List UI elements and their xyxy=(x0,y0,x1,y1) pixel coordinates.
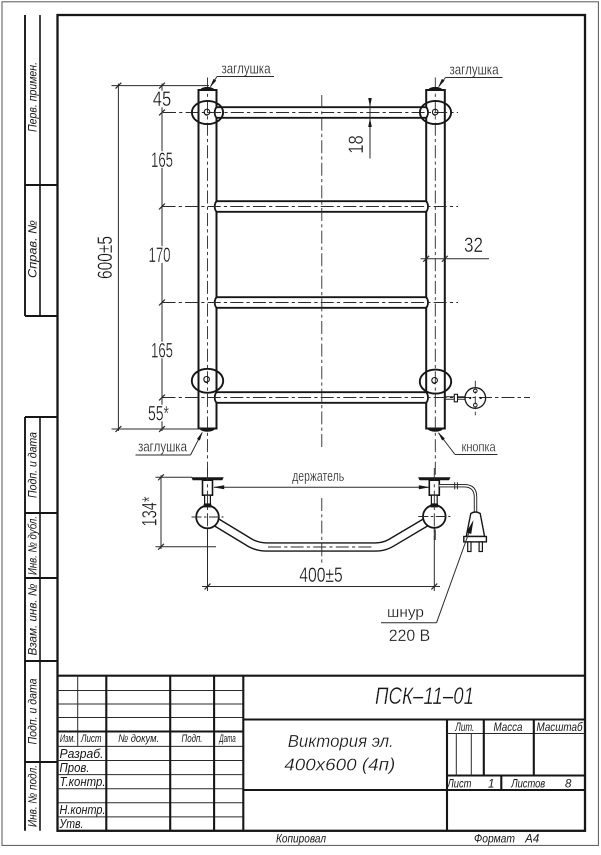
svg-text:400х600 (4п): 400х600 (4п) xyxy=(284,755,395,775)
svg-text:№ докум.: № докум. xyxy=(118,733,159,745)
svg-text:держатель: держатель xyxy=(292,468,344,485)
svg-text:шнур: шнур xyxy=(387,604,424,621)
svg-text:Подп. и дата: Подп. и дата xyxy=(26,678,40,744)
svg-text:Изм.: Изм. xyxy=(60,733,76,745)
svg-text:Разраб.: Разраб. xyxy=(60,747,104,761)
svg-text:Подп.: Подп. xyxy=(182,733,203,745)
svg-text:Лист: Лист xyxy=(447,779,472,791)
svg-text:Инв. № подл.: Инв. № подл. xyxy=(26,765,40,827)
svg-text:Виктория эл.: Виктория эл. xyxy=(288,731,394,751)
svg-text:Копировал: Копировал xyxy=(276,834,326,846)
svg-text:Перв. примен.: Перв. примен. xyxy=(26,62,40,132)
svg-text:Пров.: Пров. xyxy=(60,761,90,775)
svg-text:А4: А4 xyxy=(524,834,539,846)
svg-text:32: 32 xyxy=(464,234,483,257)
svg-text:400±5: 400±5 xyxy=(299,564,343,587)
svg-text:134*: 134* xyxy=(139,497,162,527)
svg-text:заглушка: заглушка xyxy=(450,62,499,79)
svg-text:Т.контр.: Т.контр. xyxy=(60,775,106,789)
svg-text:Формат: Формат xyxy=(474,834,515,846)
svg-text:Дата: Дата xyxy=(218,733,236,745)
svg-text:8: 8 xyxy=(565,779,572,791)
svg-text:заглушка: заглушка xyxy=(222,61,271,78)
svg-text:Лист: Лист xyxy=(80,733,101,745)
svg-text:Справ. №: Справ. № xyxy=(26,220,40,278)
svg-text:1: 1 xyxy=(488,779,494,791)
svg-text:220 В: 220 В xyxy=(389,626,431,645)
svg-text:Масса: Масса xyxy=(494,722,523,734)
svg-text:Инв. № дубл.: Инв. № дубл. xyxy=(26,516,40,575)
svg-text:45: 45 xyxy=(153,88,172,111)
svg-text:170: 170 xyxy=(149,244,171,267)
svg-text:Листов: Листов xyxy=(510,779,545,791)
svg-text:Лит.: Лит. xyxy=(455,722,475,734)
svg-text:Масштаб: Масштаб xyxy=(537,722,583,734)
svg-text:ПСК–11–01: ПСК–11–01 xyxy=(375,683,474,710)
svg-text:кнопка: кнопка xyxy=(462,439,496,455)
svg-text:165: 165 xyxy=(151,149,173,172)
svg-text:Н.контр.: Н.контр. xyxy=(60,803,106,817)
svg-text:18: 18 xyxy=(345,135,368,154)
svg-text:Подп. и дата: Подп. и дата xyxy=(26,432,40,498)
svg-text:600±5: 600±5 xyxy=(94,236,117,279)
svg-text:Утв.: Утв. xyxy=(59,817,84,831)
svg-text:55*: 55* xyxy=(148,403,169,426)
svg-text:заглушка: заглушка xyxy=(138,439,187,456)
svg-text:165: 165 xyxy=(151,340,173,363)
svg-text:Взам. инв. №: Взам. инв. № xyxy=(26,584,40,656)
